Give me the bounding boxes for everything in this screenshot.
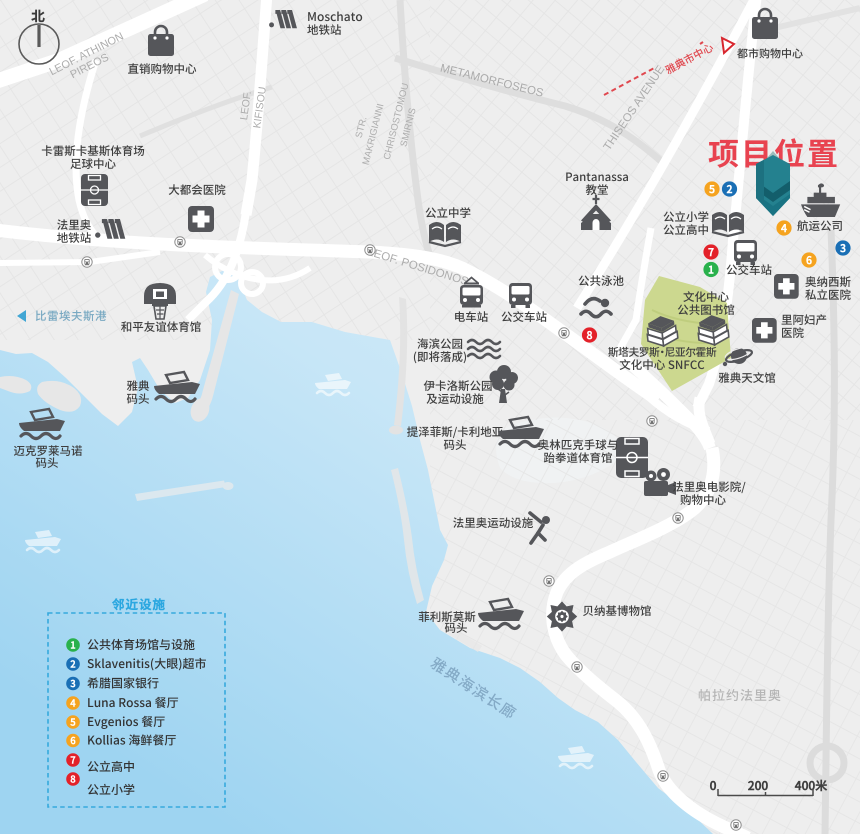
svg-text:公共泳池: 公共泳池: [578, 273, 624, 289]
svg-text:医院: 医院: [781, 325, 804, 341]
svg-text:1: 1: [708, 262, 714, 277]
svg-text:码头: 码头: [127, 391, 150, 407]
svg-text:贝纳基博物馆: 贝纳基博物馆: [583, 603, 652, 619]
svg-text:航运公司: 航运公司: [797, 218, 843, 234]
svg-text:3: 3: [839, 241, 846, 256]
svg-text:电车站: 电车站: [454, 309, 489, 325]
svg-text:(即将落成): (即将落成): [413, 349, 467, 365]
svg-text:公共图书馆: 公共图书馆: [677, 302, 735, 318]
svg-text:4: 4: [780, 221, 787, 236]
svg-text:5: 5: [708, 182, 715, 197]
svg-text:400米: 400米: [794, 777, 829, 794]
svg-text:公交车站: 公交车站: [501, 309, 547, 325]
svg-text:公共体育场馆与设施: 公共体育场馆与设施: [87, 636, 195, 653]
svg-text:2: 2: [727, 182, 733, 197]
svg-text:Evgenios 餐厅: Evgenios 餐厅: [87, 713, 165, 730]
svg-text:8: 8: [70, 771, 76, 785]
svg-text:私立医院: 私立医院: [805, 287, 851, 303]
svg-text:3: 3: [70, 676, 76, 690]
svg-text:法里奥运动设施: 法里奥运动设施: [453, 515, 534, 531]
svg-text:7: 7: [708, 245, 714, 260]
svg-text:Kollias 海鲜餐厅: Kollias 海鲜餐厅: [87, 732, 176, 749]
svg-text:及运动设施: 及运动设施: [426, 391, 484, 407]
svg-text:6: 6: [806, 253, 812, 268]
svg-text:公交车站: 公交车站: [726, 262, 772, 278]
svg-text:地铁站: 地铁站: [307, 22, 342, 38]
svg-text:购物中心: 购物中心: [680, 492, 726, 508]
svg-text:码头: 码头: [445, 620, 468, 636]
svg-text:0: 0: [710, 777, 717, 794]
svg-text:码头: 码头: [36, 455, 59, 471]
svg-text:大都会医院: 大都会医院: [168, 182, 226, 198]
svg-text:1: 1: [70, 637, 75, 651]
svg-text:文化中心 SNFCC: 文化中心 SNFCC: [619, 357, 705, 373]
svg-text:公立小学: 公立小学: [87, 781, 135, 798]
svg-text:帕拉约法里奥: 帕拉约法里奥: [698, 685, 782, 704]
svg-text:足球中心: 足球中心: [70, 156, 116, 172]
svg-text:直销购物中心: 直销购物中心: [128, 61, 197, 77]
svg-text:希腊国家银行: 希腊国家银行: [87, 675, 159, 692]
svg-text:码头: 码头: [444, 437, 467, 453]
svg-text:5: 5: [69, 714, 76, 728]
svg-text:和平友谊体育馆: 和平友谊体育馆: [121, 319, 202, 335]
svg-text:邻近设施: 邻近设施: [111, 594, 166, 613]
svg-text:公立高中: 公立高中: [87, 758, 135, 775]
svg-text:2: 2: [70, 656, 76, 670]
svg-text:8: 8: [587, 328, 593, 343]
svg-text:公立高中: 公立高中: [663, 222, 709, 238]
svg-text:200: 200: [748, 777, 769, 794]
svg-text:地铁站: 地铁站: [57, 230, 92, 246]
svg-text:雅典天文馆: 雅典天文馆: [718, 370, 776, 386]
svg-text:都市购物中心: 都市购物中心: [737, 46, 803, 62]
svg-text:公立中学: 公立中学: [425, 205, 471, 221]
svg-text:Luna Rossa 餐厅: Luna Rossa 餐厅: [87, 694, 179, 711]
svg-text:跆拳道体育馆: 跆拳道体育馆: [544, 450, 613, 466]
svg-text:4: 4: [69, 695, 76, 709]
svg-text:7: 7: [70, 752, 76, 766]
svg-text:北: 北: [31, 5, 45, 25]
svg-text:比雷埃夫斯港: 比雷埃夫斯港: [35, 308, 107, 324]
svg-text:6: 6: [70, 733, 76, 747]
svg-text:Sklavenitis(大眼)超市: Sklavenitis(大眼)超市: [87, 655, 206, 672]
